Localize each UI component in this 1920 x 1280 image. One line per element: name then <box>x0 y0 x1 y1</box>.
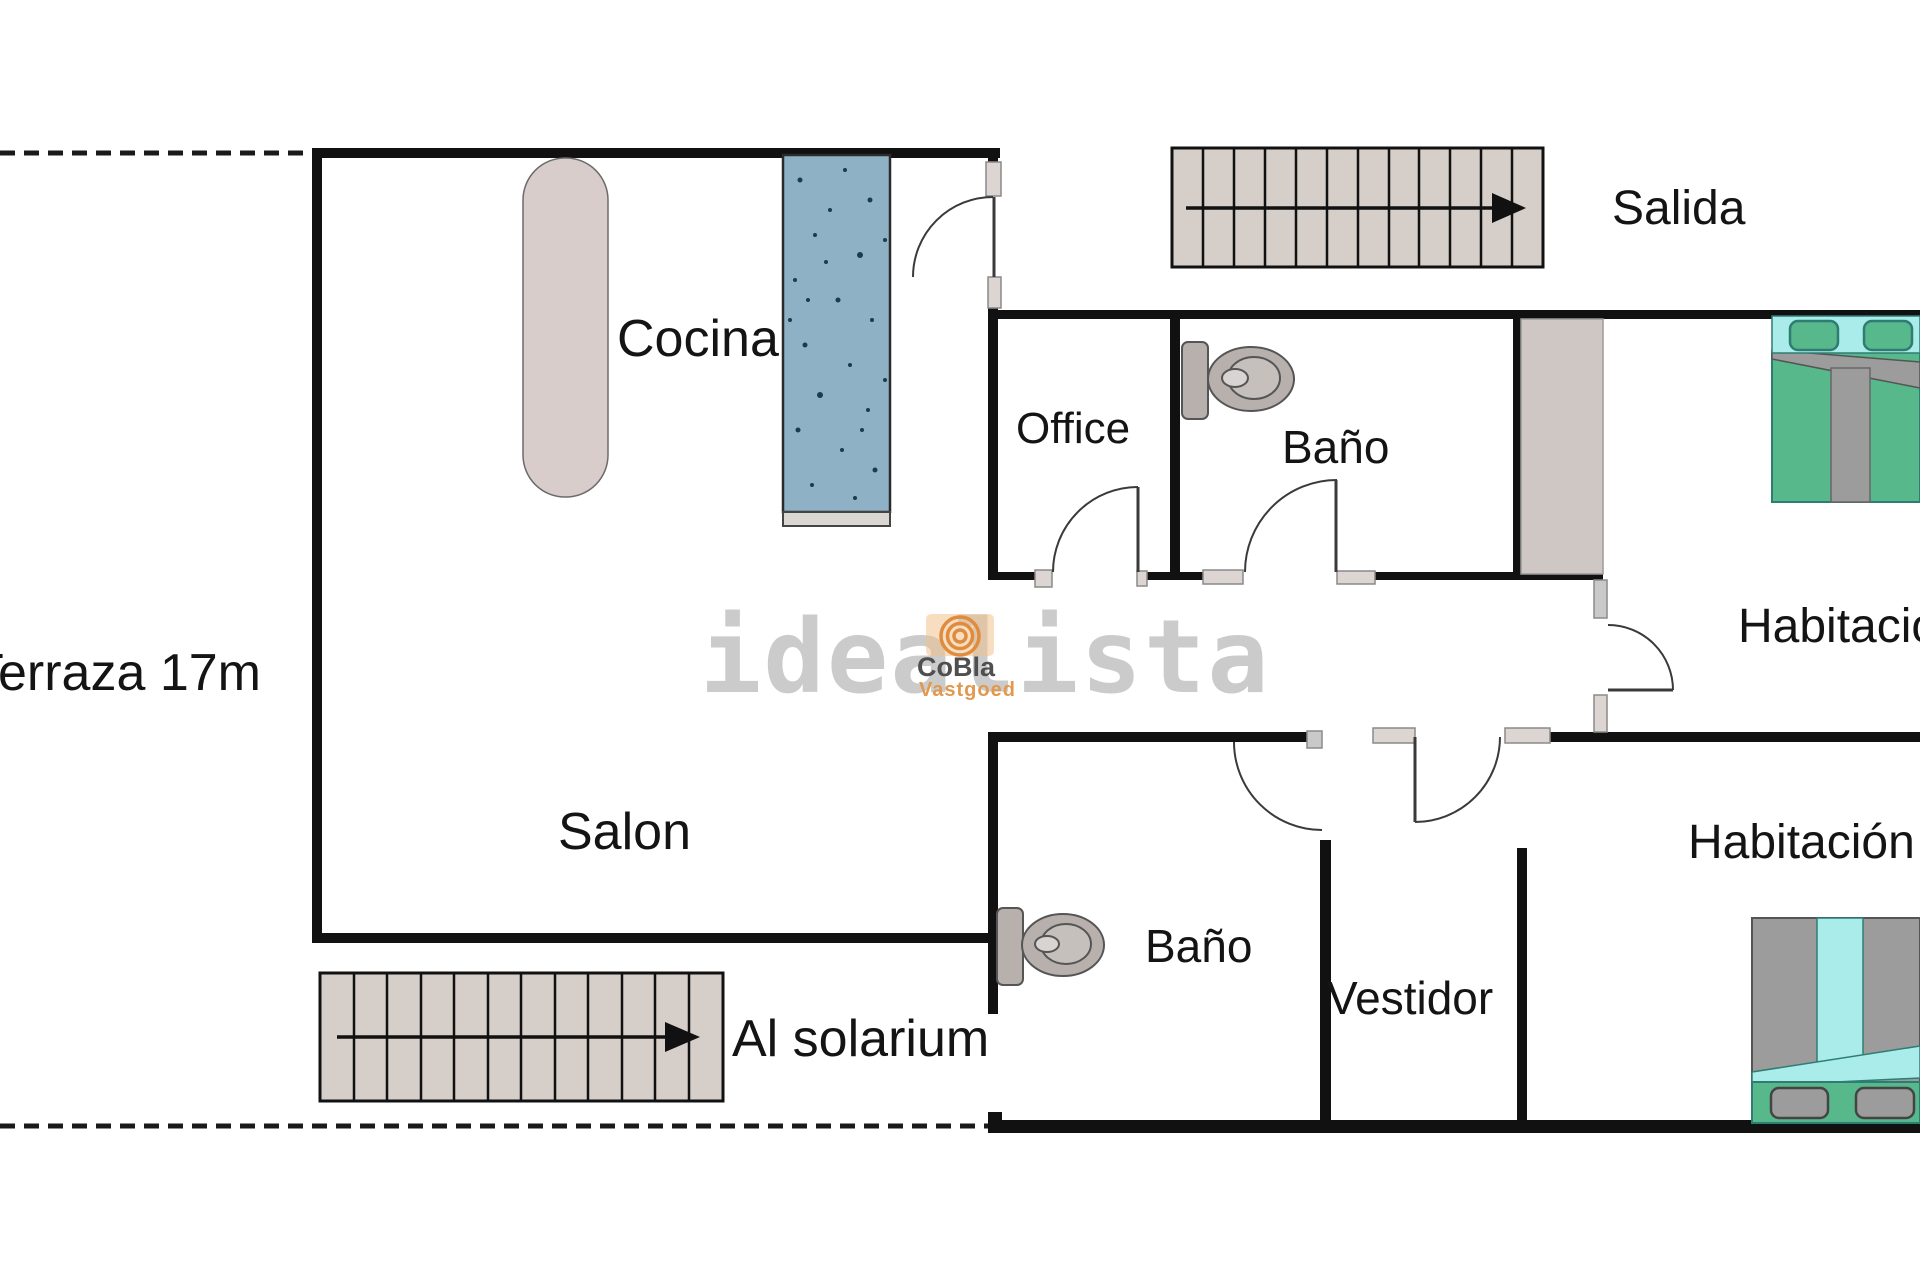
label-salon: Salon <box>558 803 691 861</box>
door-arc-bano-top <box>1245 480 1337 572</box>
door-stop-cocina-top <box>986 162 1001 196</box>
kitchen-island <box>523 158 608 497</box>
door-arc-bano-bottom <box>1234 742 1322 830</box>
agency-tagline: Vastgoed <box>919 679 1016 701</box>
door-arc-hall <box>1415 737 1500 822</box>
door-stop-office-left <box>1035 570 1052 587</box>
label-bano-top: Baño <box>1282 421 1389 473</box>
wall-corridor-bottom-a <box>998 732 1307 742</box>
label-vestidor: Vestidor <box>1327 972 1493 1024</box>
door-arc-bedroom-top <box>1608 625 1673 690</box>
door-stop-bedroom-top <box>1594 580 1607 618</box>
wall-corridor-top-a <box>998 572 1035 580</box>
door-stop-bano-right <box>1337 571 1375 584</box>
label-office: Office <box>1016 404 1130 453</box>
wall-office-bano-divider <box>1170 319 1180 572</box>
wall-top-cocina <box>312 148 1000 158</box>
label-bano-bottom: Baño <box>1145 920 1252 972</box>
door-stop-cocina-bottom <box>988 277 1001 308</box>
bed-habitacion-top <box>1772 316 1920 502</box>
door-arc-office <box>1053 487 1138 572</box>
wall-entry-mid <box>988 308 998 580</box>
wall-corridor-top-b <box>1147 572 1203 580</box>
wall-vestidor-right <box>1517 848 1527 1130</box>
wall-salon-bottom <box>312 933 998 943</box>
wall-corridor-bottom-b <box>1550 732 1920 742</box>
door-stop-office-right <box>1137 571 1147 586</box>
wall-left-salon <box>312 148 322 943</box>
toilet-bano-bottom <box>997 908 1104 985</box>
counter-end-cap <box>783 512 890 526</box>
label-al-solarium: Al solarium <box>732 1010 989 1068</box>
kitchen-counter <box>783 155 890 526</box>
wall-bano-right <box>1513 319 1521 572</box>
door-arc-cocina <box>913 197 993 277</box>
bed-habitacion-bottom <box>1752 918 1920 1123</box>
wardrobe-pillar <box>1521 319 1603 574</box>
label-habitacion-top: Habitación <box>1738 600 1920 653</box>
stairs-salida <box>1172 148 1543 267</box>
door-stop-hall-a <box>1307 731 1322 748</box>
toilet-bano-top <box>1182 342 1294 419</box>
label-terraza: Terraza 17m <box>0 644 261 702</box>
stairs-solarium <box>320 973 723 1101</box>
floorplan-canvas: idealista CoBla Vastgoed Terraza 17m Coc… <box>0 0 1920 1280</box>
agency-name: CoBla <box>917 652 996 682</box>
door-stop-bedroom-bottom <box>1594 695 1607 732</box>
label-habitacion-bottom: Habitación <box>1688 816 1915 869</box>
door-stop-hall-b <box>1373 728 1415 743</box>
label-cocina: Cocina <box>617 310 779 368</box>
door-stop-hall-c <box>1505 728 1550 743</box>
door-stop-bano-left <box>1203 570 1243 584</box>
label-salida: Salida <box>1612 182 1746 235</box>
floorplan-svg: idealista CoBla Vastgoed Terraza 17m Coc… <box>0 0 1920 1280</box>
